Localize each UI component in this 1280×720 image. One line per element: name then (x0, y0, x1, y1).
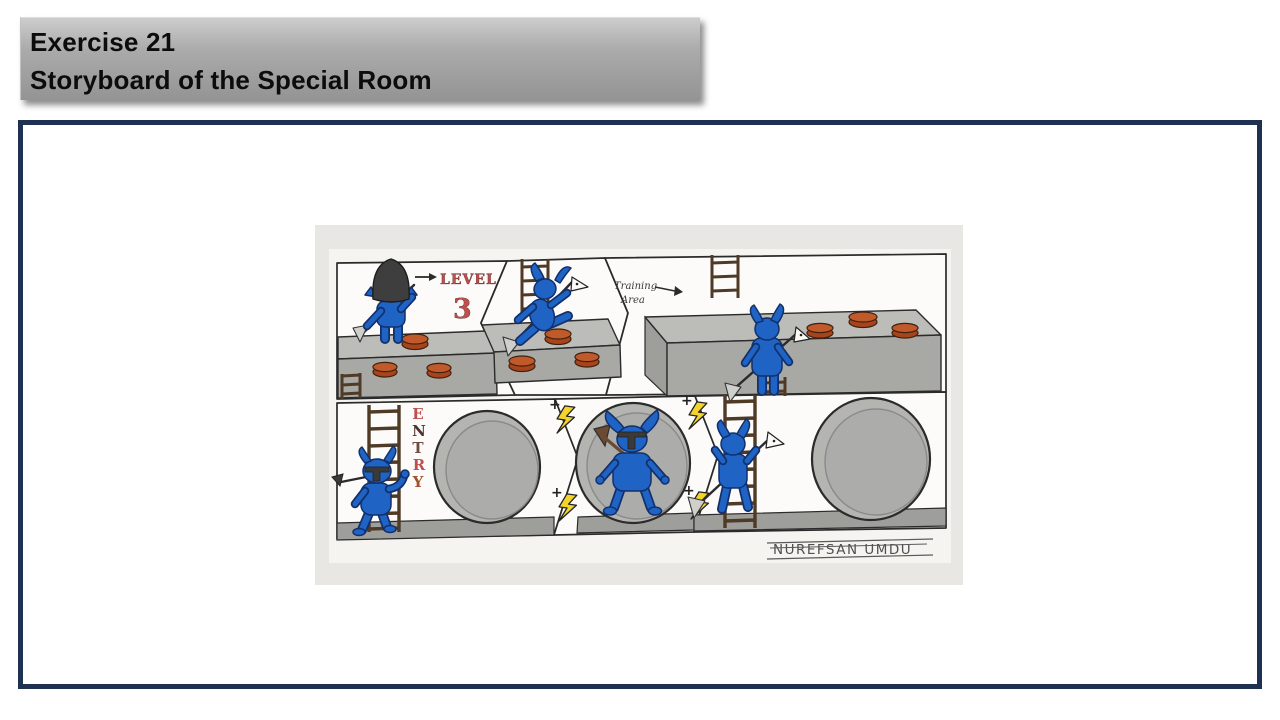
level-number: 3 (453, 294, 472, 325)
entry-letter: N (412, 422, 426, 440)
training-area-label-line1: Training (614, 281, 657, 292)
plus-sign: + (549, 397, 561, 413)
slide-title-line2: Storyboard of the Special Room (30, 61, 700, 99)
training-area-label-line2: Area (620, 295, 645, 306)
signature-block: NUREFSAN UMDU (767, 539, 933, 559)
slide-title-line1: Exercise 21 (30, 23, 700, 61)
signature: NUREFSAN UMDU (773, 542, 912, 558)
entry-letter: Y (412, 473, 424, 491)
plus-sign: + (683, 483, 695, 499)
entry-letter: T (412, 439, 424, 457)
level-label: LEVEL (440, 272, 497, 288)
ladder-top-icon (712, 255, 738, 298)
plus-sign: + (551, 485, 563, 501)
slide-title-bar: Exercise 21 Storyboard of the Special Ro… (20, 17, 700, 100)
entry-letter: E (412, 405, 423, 423)
storyboard-drawing: LEVEL 3 Training Area (315, 225, 963, 585)
storyboard-photo: LEVEL 3 Training Area (315, 225, 963, 585)
plus-sign: + (681, 393, 693, 409)
entry-letter: R (413, 456, 426, 474)
